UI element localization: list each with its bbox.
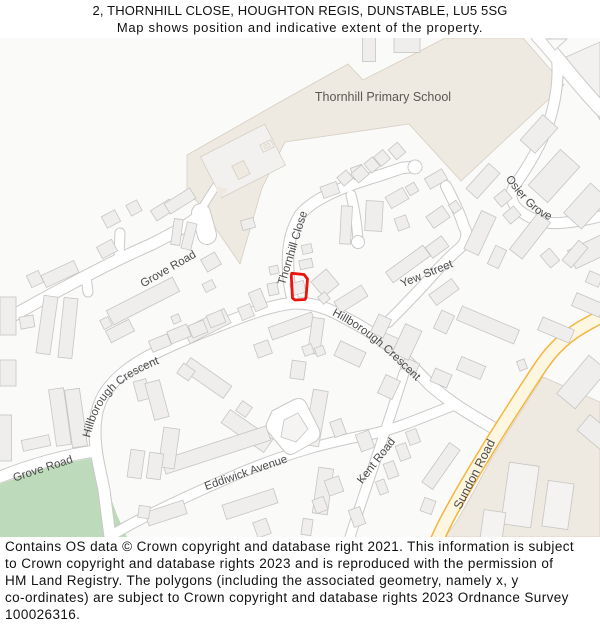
svg-text:Thornhill Primary School: Thornhill Primary School bbox=[315, 90, 451, 104]
